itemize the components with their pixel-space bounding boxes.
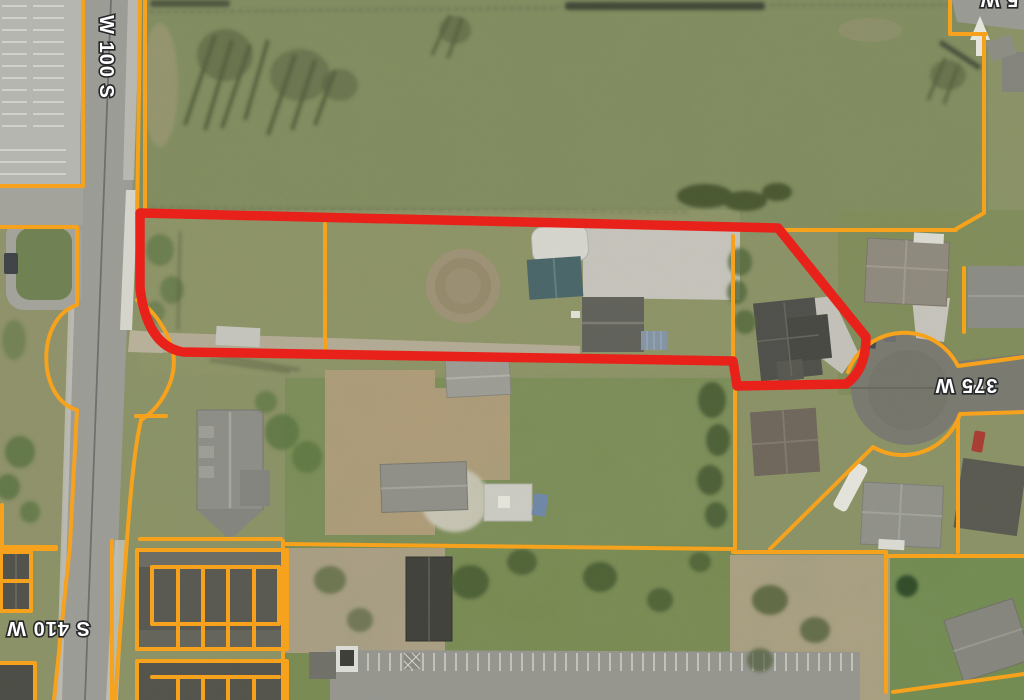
aerial-map-viewport[interactable]: W 100 S S 410 W 375 W 5 W bbox=[0, 0, 1024, 700]
street-label-s-410-w: S 410 W bbox=[6, 617, 90, 639]
street-label-w-100-s: W 100 S bbox=[95, 15, 117, 99]
street-label-partial-5w: 5 W bbox=[980, 0, 1019, 10]
street-label-375-w: 375 W bbox=[935, 374, 998, 396]
